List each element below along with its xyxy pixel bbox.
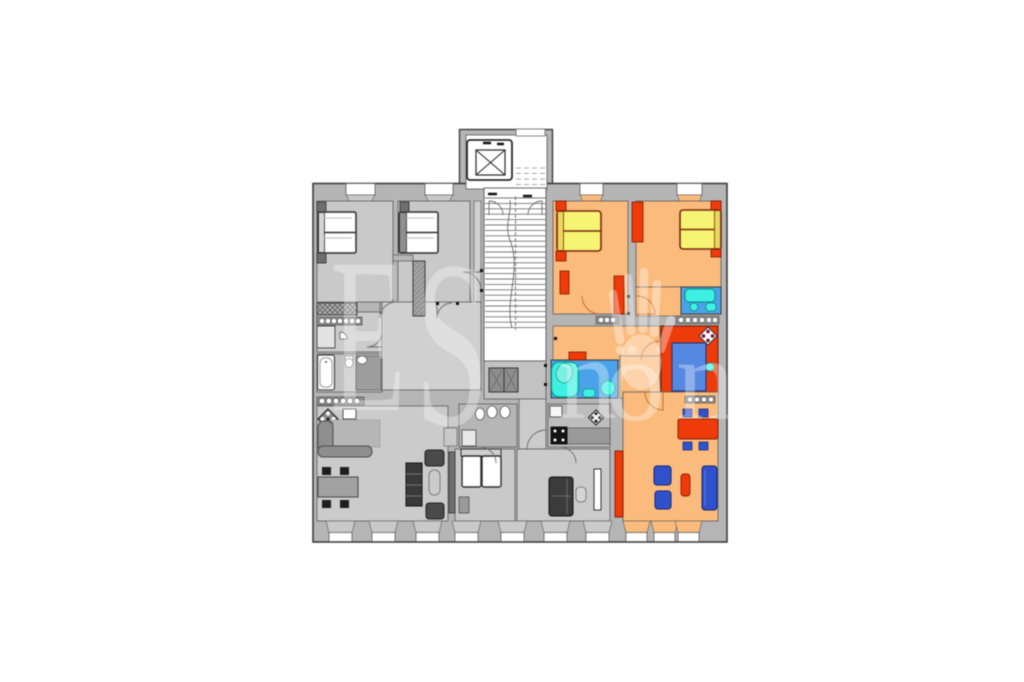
svg-text:S: S — [415, 212, 489, 476]
svg-text:n: n — [676, 314, 735, 445]
svg-text:E: E — [330, 213, 406, 459]
svg-text:o: o — [606, 315, 665, 446]
